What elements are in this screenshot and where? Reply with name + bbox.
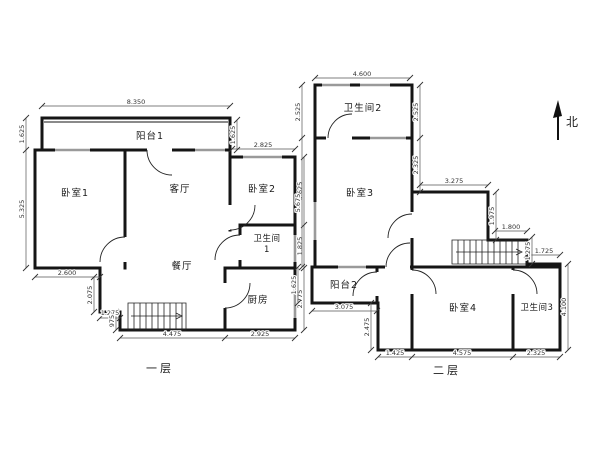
room-label-balcony1: 阳台1 (136, 130, 164, 142)
floor2-dimension-lines (298, 78, 568, 357)
dim-label: 2.325 (412, 156, 420, 175)
dim-label: 2.600 (58, 269, 77, 277)
room-label-bedroom2: 卧室2 (248, 183, 276, 195)
dim-label: 1.725 (535, 247, 554, 255)
dim-label: 8.350 (127, 98, 146, 106)
room-label-bedroom3: 卧室3 (346, 187, 374, 199)
dim-label: 4.575 (453, 349, 472, 357)
floor2-interior-walls (312, 138, 560, 350)
floor2-title: 二层 (433, 364, 461, 377)
dim-label: 1.275 (524, 242, 532, 261)
room-label-dining: 餐厅 (171, 260, 192, 272)
floor2-plan: 4.600 2.525 5.675 1.625 3.075 2.475 1.42… (290, 70, 571, 377)
dim-label: 2.525 (294, 103, 302, 122)
room-label-living: 客厅 (169, 183, 190, 195)
north-arrowhead-icon (553, 100, 562, 118)
room-label-bath3: 卫生间3 (521, 302, 554, 313)
room-label-balcony2: 阳台2 (330, 279, 358, 291)
dim-label: 3.075 (335, 303, 354, 311)
floor2-dimension-ticks (295, 75, 571, 360)
room-label-kitchen: 厨房 (247, 294, 268, 306)
north-indicator: 北 (553, 100, 578, 140)
dim-label: 1.825 (296, 237, 304, 256)
floor1-stairs (128, 303, 186, 330)
floorplan-page: 8.350 1.625 5.325 1.625 2.825 2.600 2.07… (0, 0, 600, 450)
dim-label: 1.625 (18, 125, 26, 144)
floorplan-image: 8.350 1.625 5.325 1.625 2.825 2.600 2.07… (0, 0, 600, 450)
dim-label: 2.325 (527, 349, 546, 357)
dim-label: 2.475 (363, 318, 371, 337)
room-label-bath1-num: 1 (264, 245, 270, 255)
room-label-bedroom1: 卧室1 (61, 187, 89, 199)
floor2-stairs (452, 240, 527, 264)
dim-label: 1.625 (229, 126, 237, 145)
dim-label: 975 (108, 315, 116, 327)
dim-label: 4.475 (163, 330, 182, 338)
dim-label: 4.100 (560, 298, 568, 317)
dim-label: 1.975 (488, 207, 496, 226)
floor1-title: 一层 (146, 362, 174, 375)
dim-label: 2.525 (412, 103, 420, 122)
dim-label: 1.425 (386, 349, 405, 357)
dim-label: 1.625 (290, 276, 298, 295)
dim-label: 2.075 (86, 286, 94, 305)
dim-label: 5.325 (18, 200, 26, 219)
dim-label: 2.825 (254, 141, 273, 149)
dim-label: 2.925 (251, 330, 270, 338)
floor1-plan: 8.350 1.625 5.325 1.625 2.825 2.600 2.07… (18, 98, 307, 375)
room-label-bedroom4: 卧室4 (449, 302, 477, 314)
dim-label: 1.800 (502, 223, 521, 231)
floor1-stairs-arrow (131, 313, 182, 319)
dim-label: 4.600 (353, 70, 372, 78)
north-label: 北 (566, 115, 578, 129)
room-label-bath2: 卫生间2 (344, 102, 383, 114)
room-label-bath1: 卫生间 (253, 233, 280, 244)
dim-label: 3.275 (445, 177, 464, 185)
dim-label: 5.675 (294, 194, 302, 213)
